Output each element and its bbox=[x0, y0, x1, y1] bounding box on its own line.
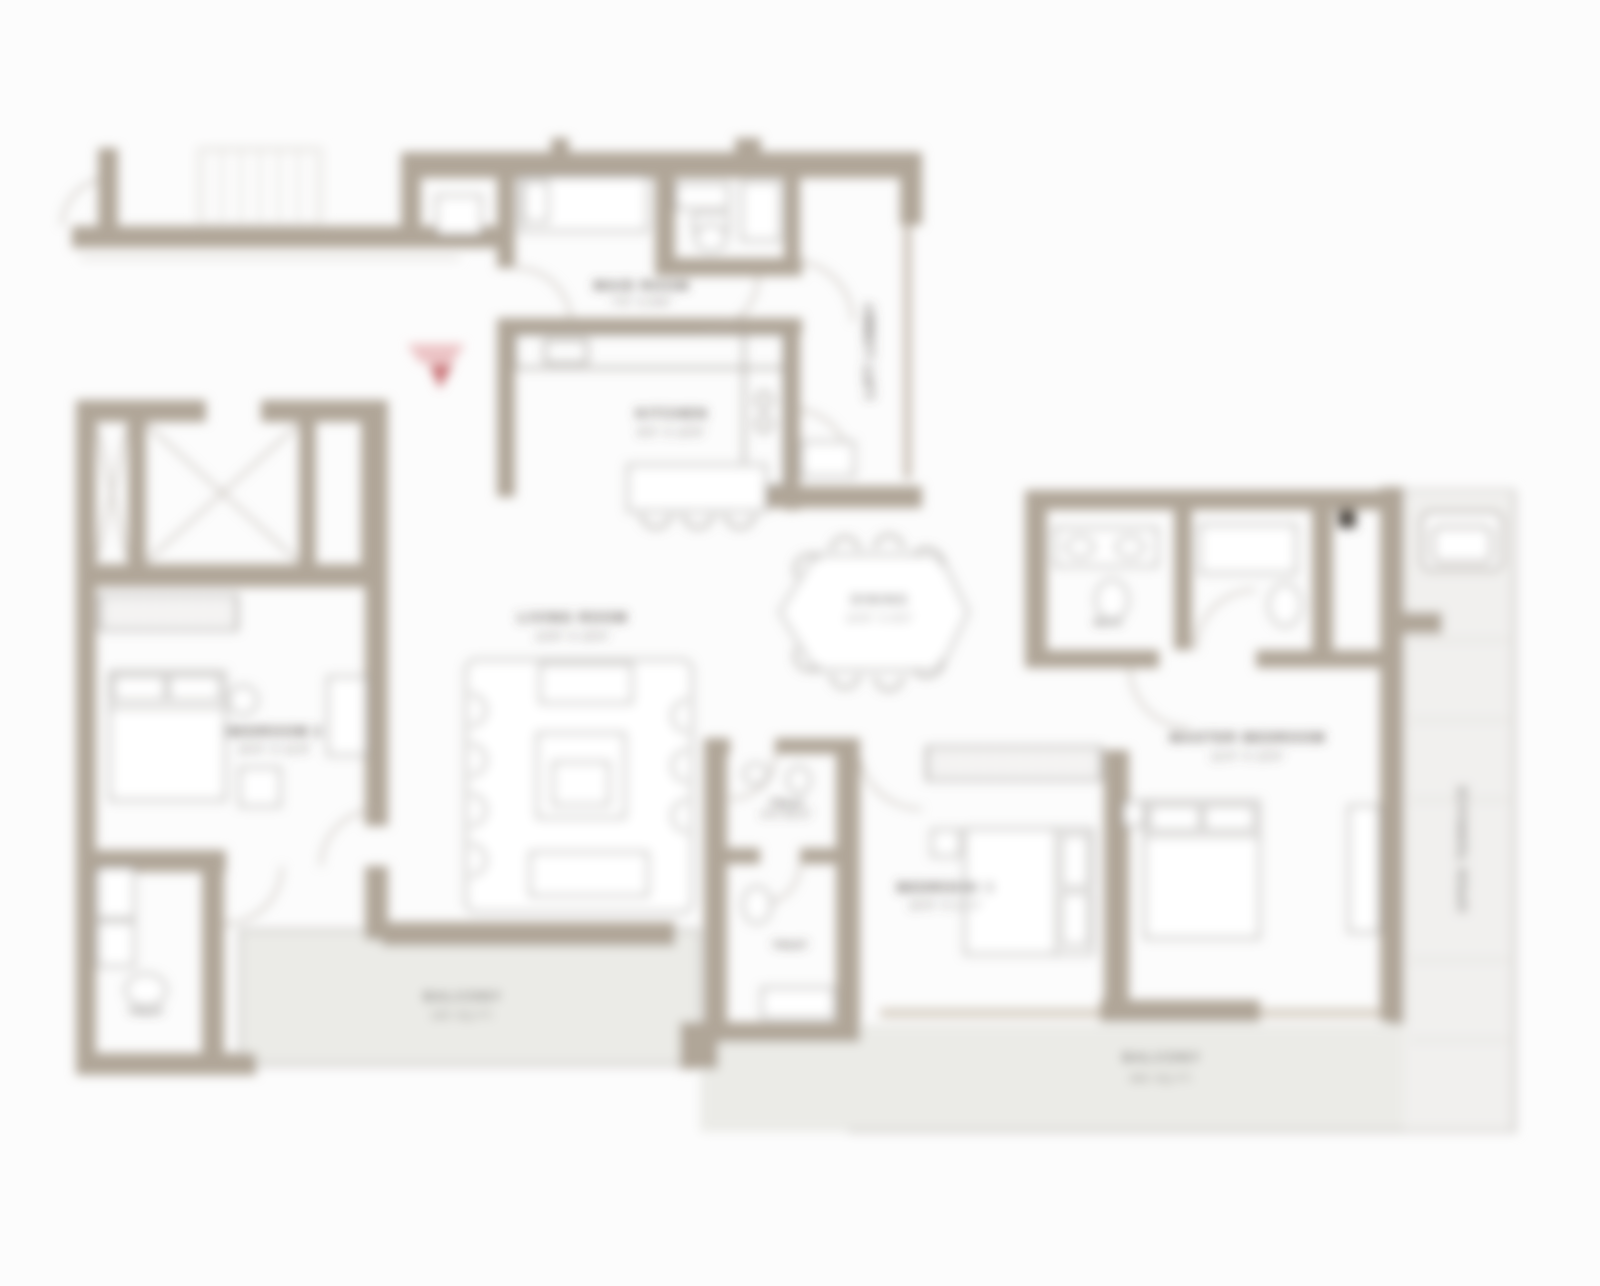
svg-text:10'0" X 11'6": 10'0" X 11'6" bbox=[238, 744, 312, 756]
svg-text:OPEN TERRACE: OPEN TERRACE bbox=[1455, 784, 1470, 913]
svg-text:TOILET: TOILET bbox=[769, 798, 804, 809]
svg-text:7'0" X 8'6": 7'0" X 8'6" bbox=[612, 297, 673, 309]
svg-text:13'6" X 15'0": 13'6" X 15'0" bbox=[535, 631, 610, 643]
svg-text:BALCONY: BALCONY bbox=[1122, 1050, 1201, 1065]
svg-text:MASTER BEDROOM: MASTER BEDROOM bbox=[1170, 730, 1326, 745]
svg-text:LIVING ROOM: LIVING ROOM bbox=[518, 610, 629, 625]
svg-text:LIFT LOBBY: LIFT LOBBY bbox=[862, 301, 877, 399]
svg-text:8'0" X 10'6": 8'0" X 10'6" bbox=[638, 427, 706, 439]
svg-text:11'0" X 13'0": 11'0" X 13'0" bbox=[1211, 751, 1285, 763]
svg-text:480 SQ.FT.: 480 SQ.FT. bbox=[1129, 1073, 1195, 1085]
svg-text:10'0" X 11'0": 10'0" X 11'0" bbox=[909, 900, 983, 912]
svg-text:KITCHEN: KITCHEN bbox=[636, 406, 709, 421]
svg-text:BATH: BATH bbox=[1095, 617, 1122, 628]
svg-text:4'0"X5'0": 4'0"X5'0" bbox=[761, 809, 814, 821]
svg-text:BEDROOM 3: BEDROOM 3 bbox=[897, 880, 995, 895]
svg-text:MAID ROOM: MAID ROOM bbox=[594, 278, 690, 293]
svg-text:BALCONY: BALCONY bbox=[423, 989, 502, 1004]
svg-text:TOILET: TOILET bbox=[772, 940, 807, 951]
svg-text:TOILET: TOILET bbox=[128, 1006, 163, 1017]
svg-text:185 SQ.FT.: 185 SQ.FT. bbox=[430, 1010, 496, 1022]
svg-text:10'6" X 8'0": 10'6" X 8'0" bbox=[846, 613, 914, 625]
svg-text:BEDROOM 2: BEDROOM 2 bbox=[226, 724, 324, 739]
svg-text:DINING: DINING bbox=[851, 592, 909, 607]
